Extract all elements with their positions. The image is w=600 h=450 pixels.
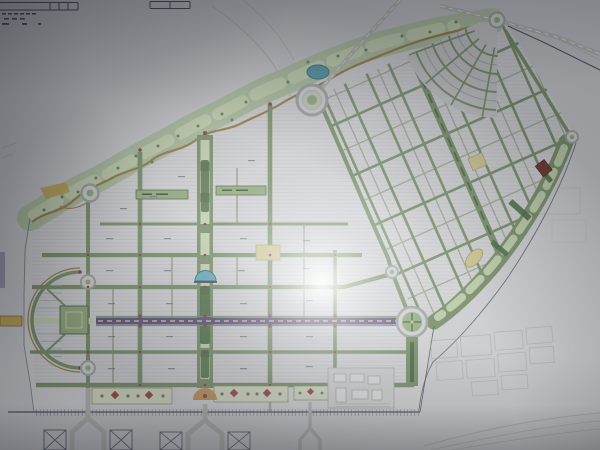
west-entry-road [0, 316, 22, 326]
master-plan-photo [0, 0, 600, 450]
east-green-roundabout [397, 307, 427, 337]
parterre-panel [92, 388, 172, 404]
east-corner-roundabout [566, 131, 578, 143]
transition-roundabout [386, 266, 398, 278]
plan-drawing [0, 0, 600, 450]
left-edge-legend-strip [0, 252, 5, 288]
west-yellow-block [256, 245, 280, 260]
crescent-plaza [60, 306, 88, 334]
title-block [0, 2, 190, 25]
pond [307, 65, 329, 79]
parterre-panel [214, 386, 288, 402]
offplan-curves-bottomright [424, 413, 600, 450]
parterre-panel [294, 386, 328, 400]
west-band-roundabout [82, 185, 99, 202]
central-ring-roundabout [297, 85, 327, 115]
commercial-area-southeast [328, 368, 394, 408]
top-roundabout [490, 13, 505, 28]
title-block-text-marks [2, 13, 41, 25]
